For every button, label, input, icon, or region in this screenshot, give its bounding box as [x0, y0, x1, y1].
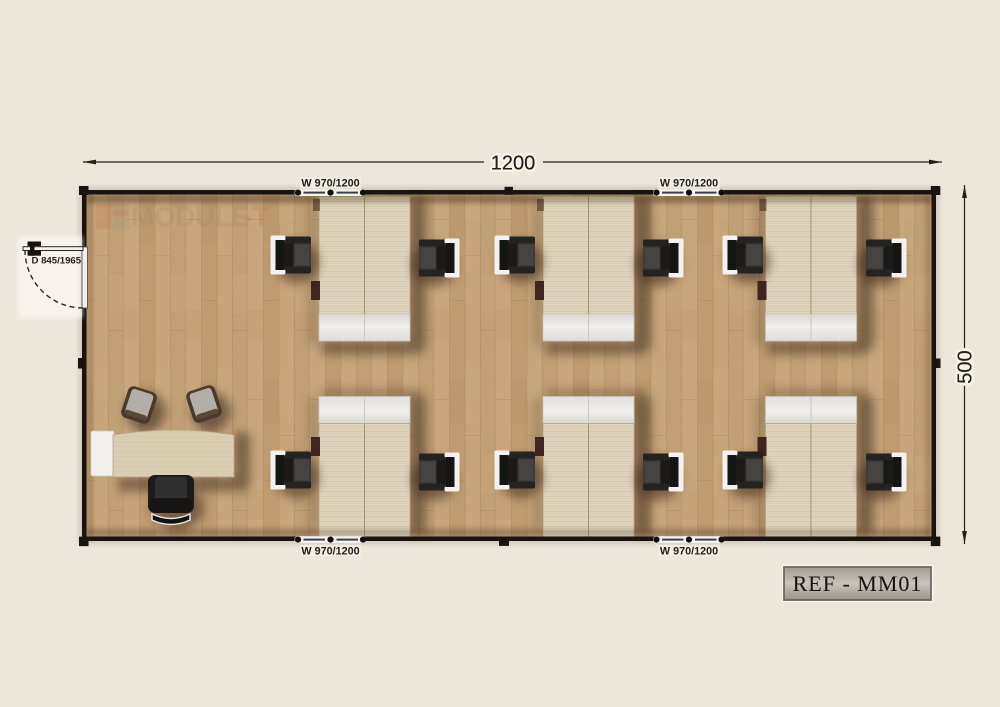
- svg-text:REF - MM01: REF - MM01: [793, 571, 923, 596]
- svg-text:1200: 1200: [491, 153, 536, 175]
- svg-text:D 845/1965: D 845/1965: [32, 256, 82, 267]
- svg-text:W 970/1200: W 970/1200: [301, 546, 359, 558]
- svg-text:-T: -T: [243, 201, 269, 232]
- svg-text:W 970/1200: W 970/1200: [660, 178, 718, 190]
- svg-text:W 970/1200: W 970/1200: [301, 178, 359, 190]
- svg-text:500: 500: [955, 350, 977, 383]
- svg-text:MODULE: MODULE: [131, 201, 249, 232]
- svg-text:W 970/1200: W 970/1200: [660, 546, 718, 558]
